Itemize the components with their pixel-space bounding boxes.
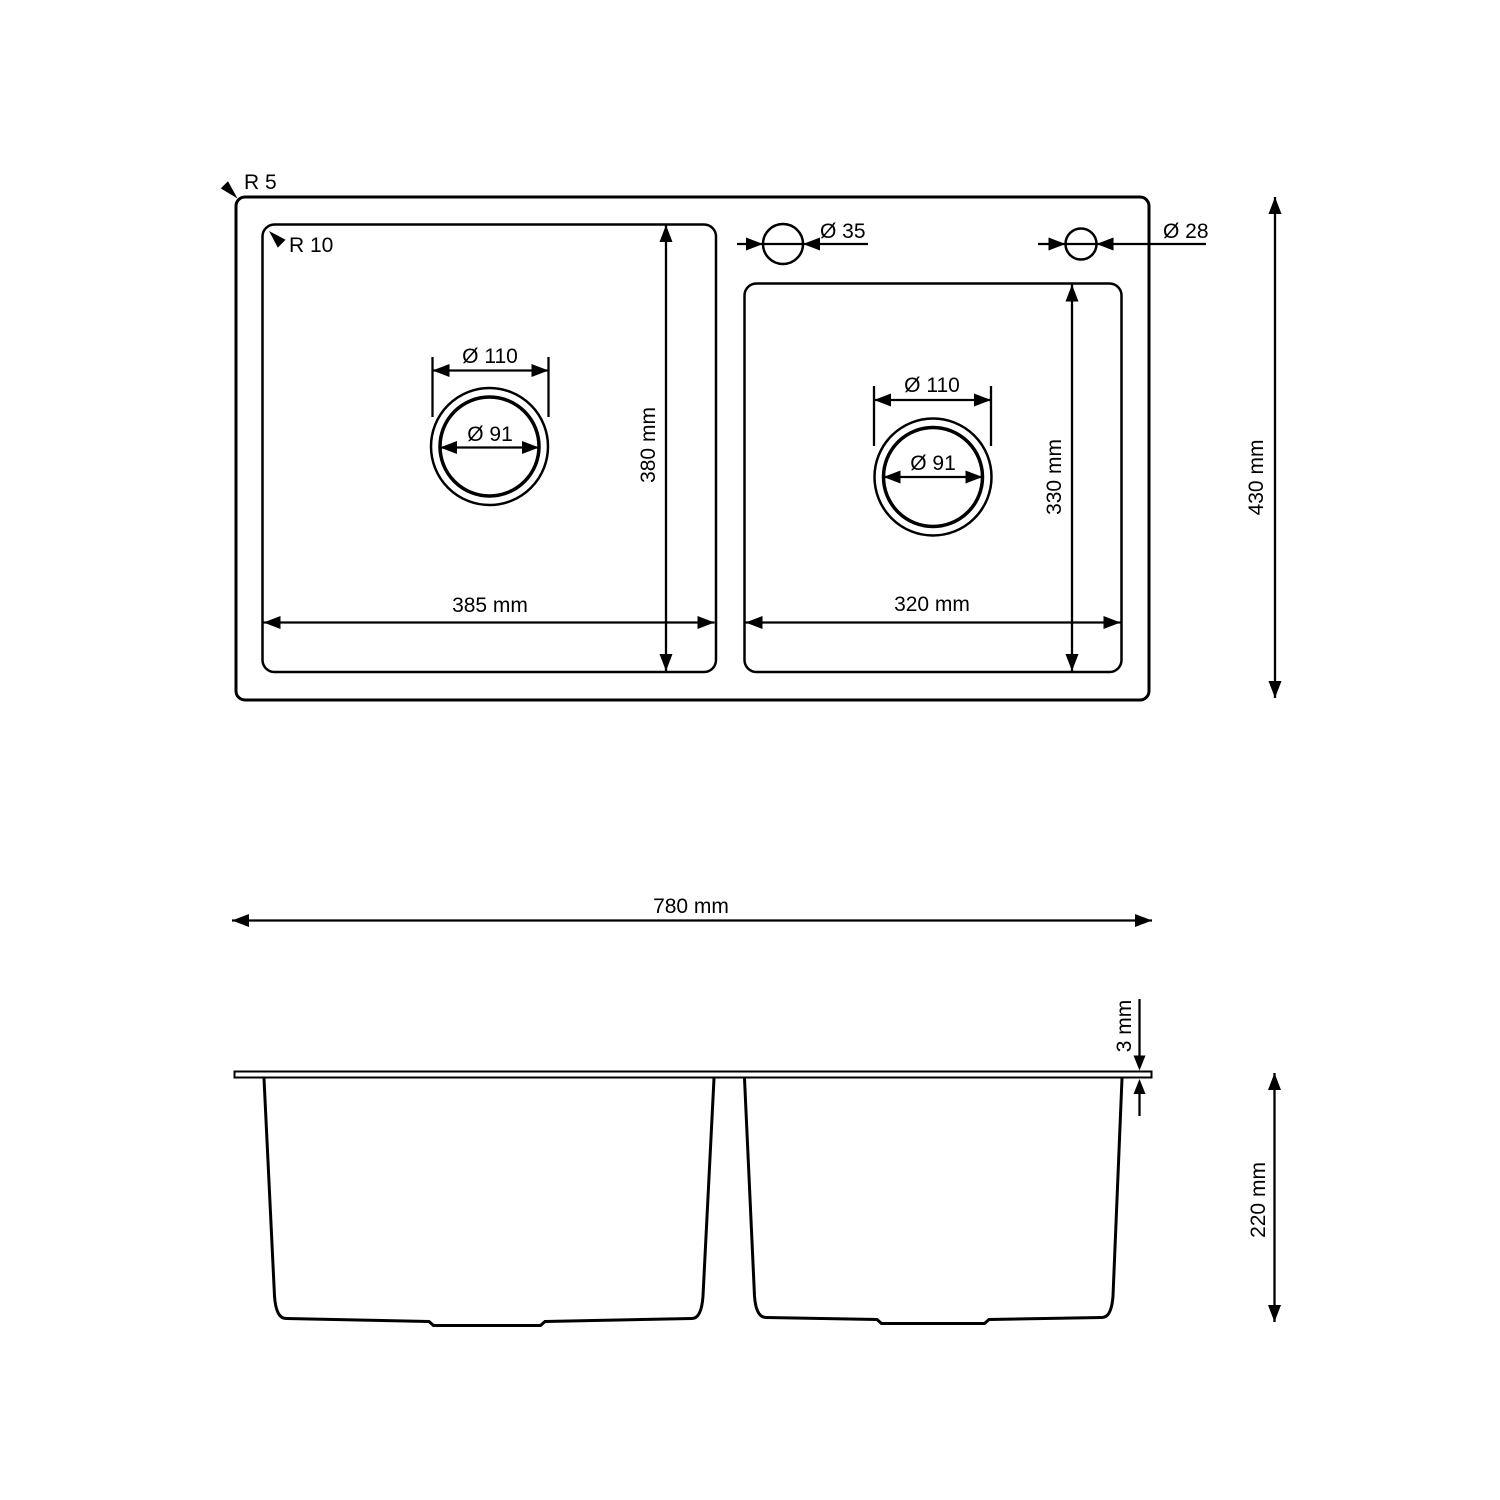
svg-text:Ø 110: Ø 110 <box>904 374 960 397</box>
svg-text:R 5: R 5 <box>244 171 277 194</box>
svg-text:3 mm: 3 mm <box>1113 1000 1136 1053</box>
svg-text:780 mm: 780 mm <box>653 895 729 918</box>
svg-text:320 mm: 320 mm <box>894 593 970 616</box>
svg-text:430 mm: 430 mm <box>1245 440 1268 516</box>
svg-text:380 mm: 380 mm <box>637 407 660 483</box>
svg-text:Ø 91: Ø 91 <box>910 452 956 475</box>
svg-text:330 mm: 330 mm <box>1043 439 1066 515</box>
svg-text:385 mm: 385 mm <box>452 594 528 617</box>
svg-text:R 10: R 10 <box>289 234 333 257</box>
svg-text:Ø 91: Ø 91 <box>467 423 513 446</box>
svg-text:220 mm: 220 mm <box>1247 1162 1270 1238</box>
svg-text:Ø 35: Ø 35 <box>820 220 866 243</box>
svg-text:Ø 28: Ø 28 <box>1163 220 1209 243</box>
svg-text:Ø 110: Ø 110 <box>462 345 518 368</box>
